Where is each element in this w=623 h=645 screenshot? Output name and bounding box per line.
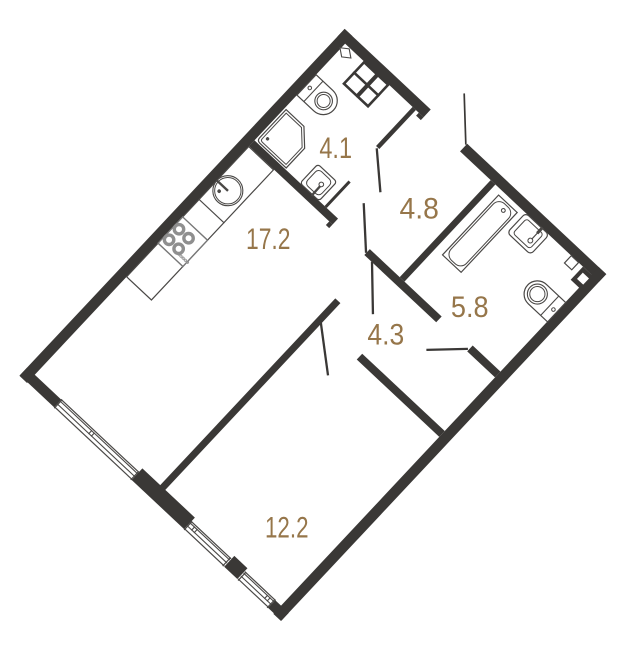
svg-text:4.3: 4.3 [367,318,404,351]
svg-text:12.2: 12.2 [265,511,309,544]
svg-text:4.8: 4.8 [400,193,439,226]
svg-text:17.2: 17.2 [246,223,291,256]
svg-text:5.8: 5.8 [451,291,489,324]
svg-text:4.1: 4.1 [319,132,352,165]
